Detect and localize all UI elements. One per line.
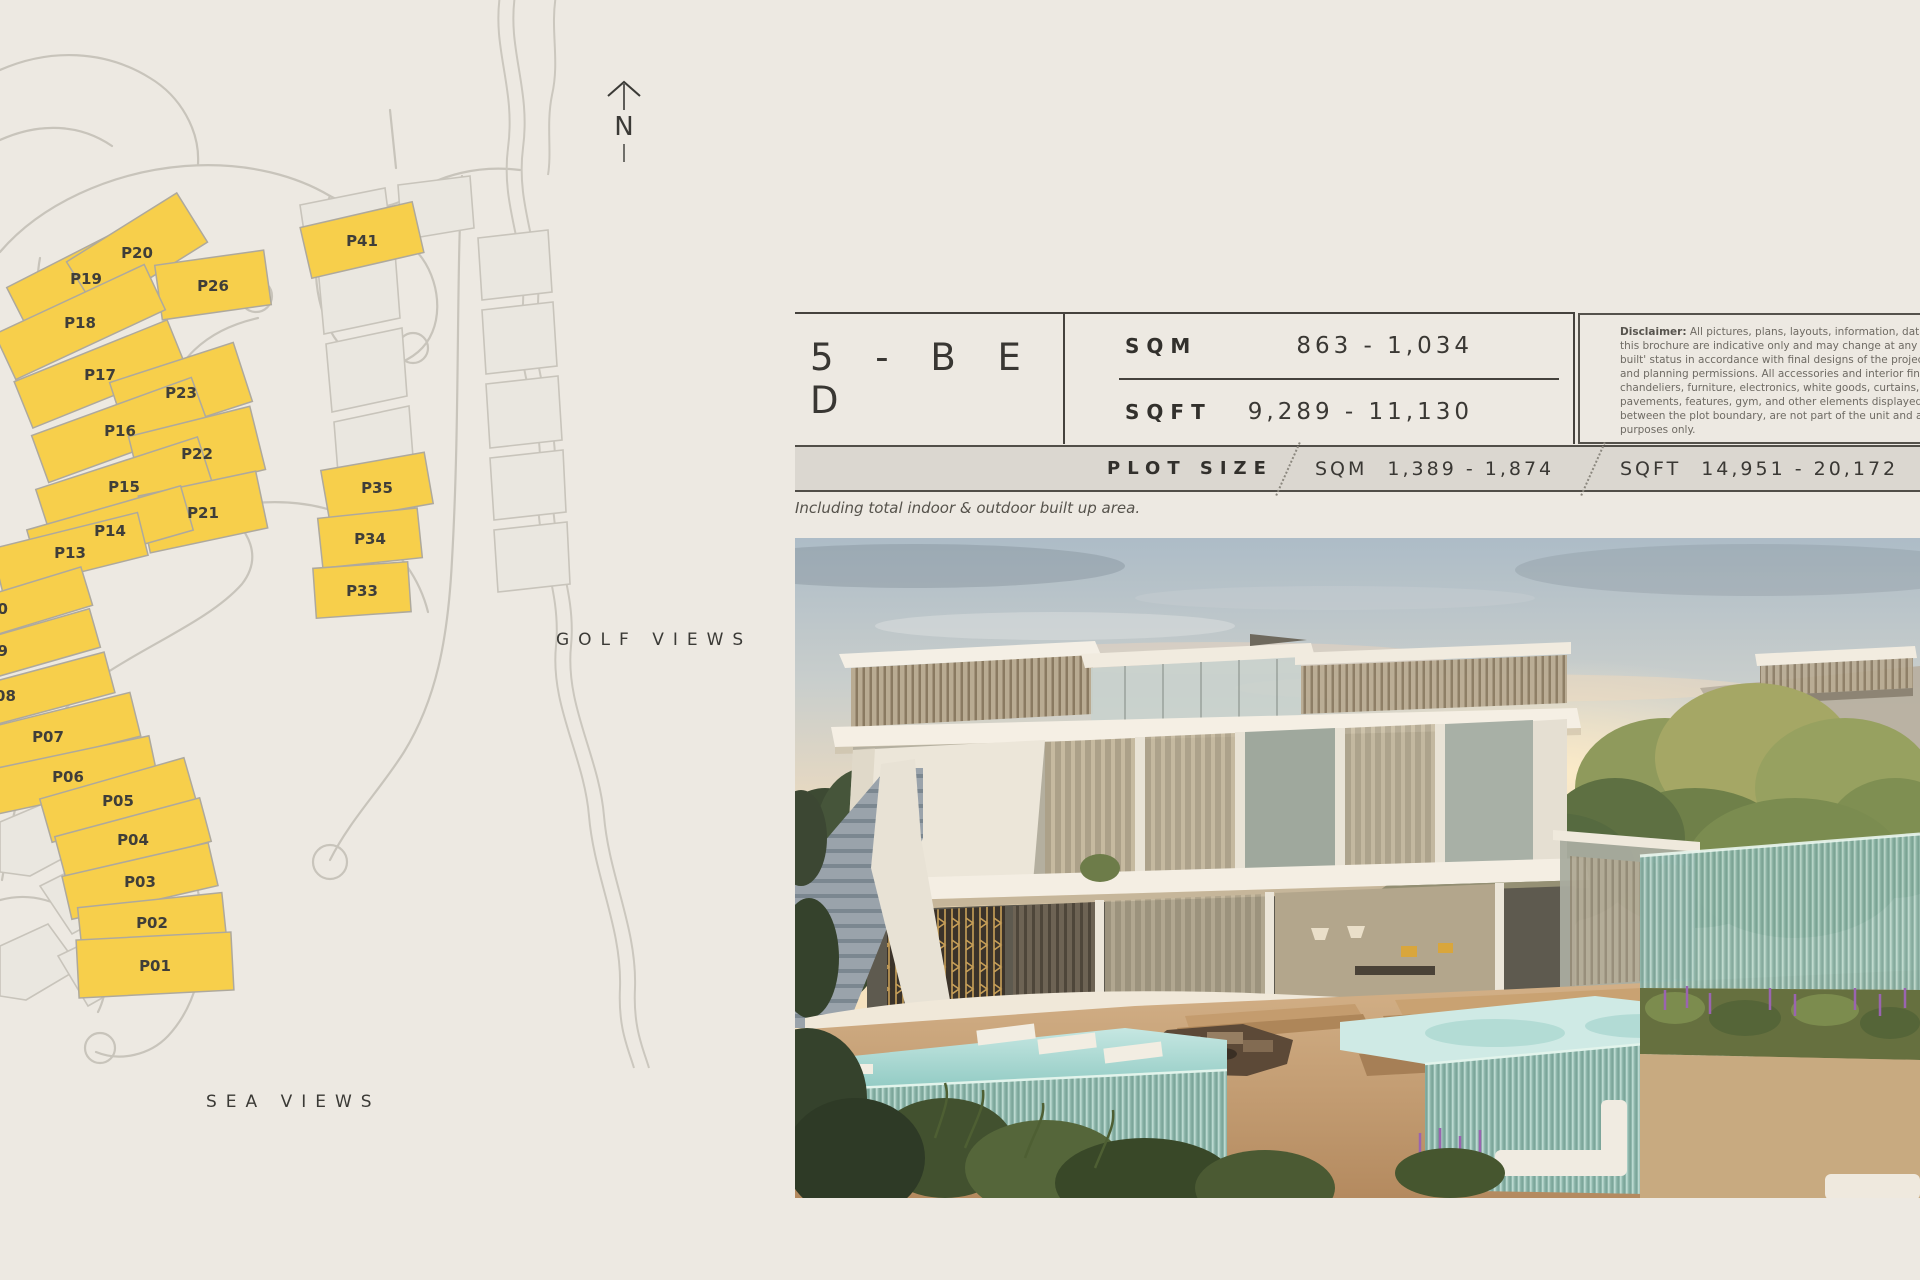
bedrooms-title: 5 - B E D — [795, 314, 1065, 444]
disclaimer-line: between the plot boundary, are not part … — [1620, 409, 1920, 423]
plot-label-P19: P19 — [70, 270, 102, 288]
plot-label-P15: P15 — [108, 478, 140, 496]
area-footnote: Including total indoor & outdoor built u… — [795, 499, 1140, 517]
plot-label-P26: P26 — [197, 277, 229, 295]
north-label: N — [592, 112, 656, 142]
plot-label-P03: P03 — [124, 873, 156, 891]
sqm-unit-label: SQM — [1125, 334, 1197, 358]
sqft-row: SQFT 9,289 - 11,130 — [1065, 380, 1573, 444]
plot-label-P22: P22 — [181, 445, 213, 463]
villa-render-scene — [795, 538, 1920, 1198]
disclaimer-line: pavements, features, gym, and other elem… — [1620, 395, 1920, 409]
plot-label-P34: P34 — [354, 530, 386, 548]
plot-label-P05: P05 — [102, 792, 134, 810]
disclaimer-label: Disclaimer: — [1620, 326, 1687, 338]
plot-size-sqft: SQFT14,951 - 20,172 — [1620, 458, 1898, 480]
plot-label-P23: P23 — [165, 384, 197, 402]
sea-views-label: SEA VIEWS — [206, 1092, 381, 1112]
plot-label-P41: P41 — [346, 232, 378, 250]
diagonal-divider — [1275, 442, 1300, 496]
north-tick-icon — [592, 142, 656, 164]
sqft-unit-label: SQFT — [1125, 400, 1212, 424]
plot-label-P10: P10 — [0, 600, 8, 618]
plot-label-P33: P33 — [346, 582, 378, 600]
diagonal-divider — [1580, 442, 1605, 496]
villa-render-photo — [795, 538, 1920, 1198]
plot-label-P02: P02 — [136, 914, 168, 932]
plot-label-P07: P07 — [32, 728, 64, 746]
plot-label-P09: P09 — [0, 642, 8, 660]
north-arrow-icon — [592, 76, 656, 110]
plot-label-P21: P21 — [187, 504, 219, 522]
sqm-range-value: 863 - 1,034 — [1296, 333, 1473, 359]
plot-label-P06: P06 — [52, 768, 84, 786]
plot-size-sqm: SQM1,389 - 1,874 — [1315, 458, 1554, 480]
plot-label-P08: P08 — [0, 687, 16, 705]
plot-label-P17: P17 — [84, 366, 116, 384]
disclaimer-line: Disclaimer: All pictures, plans, layouts… — [1620, 325, 1920, 339]
plot-label-P13: P13 — [54, 544, 86, 562]
plot-label-P18: P18 — [64, 314, 96, 332]
plot-label-P35: P35 — [361, 479, 393, 497]
disclaimer-line: built' status in accordance with final d… — [1620, 353, 1920, 367]
disclaimer-line: chandeliers, furniture, electronics, whi… — [1620, 381, 1920, 395]
disclaimer-line: this brochure are indicative only and ma… — [1620, 339, 1920, 353]
plot-size-label: PLOT SIZE — [1107, 458, 1273, 479]
spec-table: 5 - B E D SQM 863 - 1,034 SQFT 9,289 - 1… — [795, 312, 1575, 444]
plot-label-P16: P16 — [104, 422, 136, 440]
plot-label-P01: P01 — [139, 957, 171, 975]
north-indicator: N — [592, 76, 656, 164]
plot-label-P04: P04 — [117, 831, 149, 849]
plot-label-P20: P20 — [121, 244, 153, 262]
plot-size-bar: PLOT SIZE SQM1,389 - 1,874 SQFT14,951 - … — [795, 445, 1920, 492]
area-specs: SQM 863 - 1,034 SQFT 9,289 - 11,130 — [1065, 314, 1575, 444]
sqft-range-value: 9,289 - 11,130 — [1248, 399, 1473, 425]
plot-label-P14: P14 — [94, 522, 126, 540]
sqm-row: SQM 863 - 1,034 — [1065, 314, 1573, 378]
disclaimer-box: Disclaimer: All pictures, plans, layouts… — [1578, 313, 1920, 444]
golf-views-label: GOLF VIEWS — [556, 630, 752, 650]
disclaimer-line: and planning permissions. All accessorie… — [1620, 367, 1920, 381]
disclaimer-line: purposes only. — [1620, 423, 1920, 437]
brochure-page: { "map": { "north_label": "N", "golf_vie… — [0, 0, 1920, 1280]
